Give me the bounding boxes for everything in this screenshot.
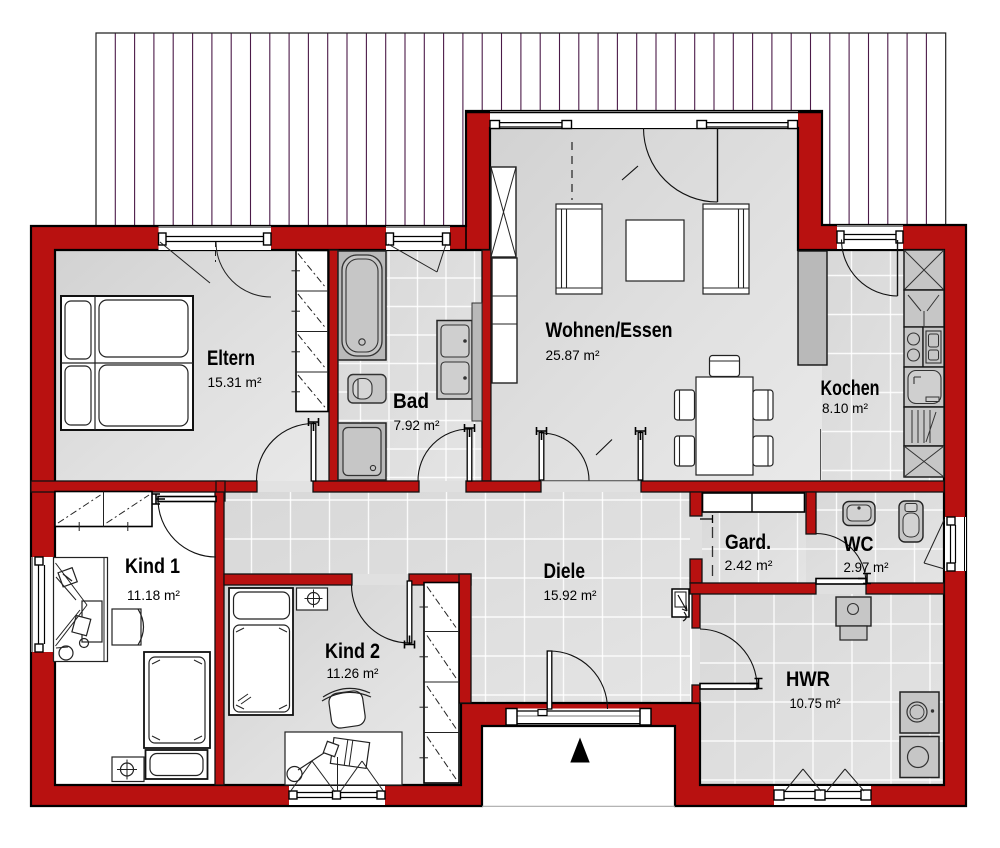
svg-text:7.92 m²: 7.92 m² — [394, 417, 440, 433]
svg-text:Eltern: Eltern — [207, 346, 255, 370]
svg-text:15.31 m²: 15.31 m² — [208, 374, 262, 390]
svg-text:11.18 m²: 11.18 m² — [127, 587, 180, 603]
svg-text:15.92 m²: 15.92 m² — [544, 587, 597, 603]
svg-text:11.26 m²: 11.26 m² — [327, 665, 379, 681]
svg-text:2.42 m²: 2.42 m² — [725, 557, 773, 573]
svg-text:25.87 m²: 25.87 m² — [546, 347, 600, 363]
svg-text:Kind 1: Kind 1 — [125, 554, 180, 578]
svg-text:Gard.: Gard. — [725, 530, 771, 554]
svg-text:Bad: Bad — [393, 389, 429, 413]
svg-text:8.10 m²: 8.10 m² — [822, 400, 868, 416]
svg-text:Wohnen/Essen: Wohnen/Essen — [546, 318, 673, 342]
svg-text:10.75 m²: 10.75 m² — [790, 695, 841, 711]
svg-text:Diele: Diele — [544, 559, 586, 583]
svg-text:2.97 m²: 2.97 m² — [844, 559, 889, 575]
svg-text:HWR: HWR — [786, 667, 830, 691]
svg-text:WC: WC — [844, 532, 874, 556]
svg-text:Kochen: Kochen — [821, 376, 880, 400]
svg-text:Kind 2: Kind 2 — [325, 639, 380, 663]
